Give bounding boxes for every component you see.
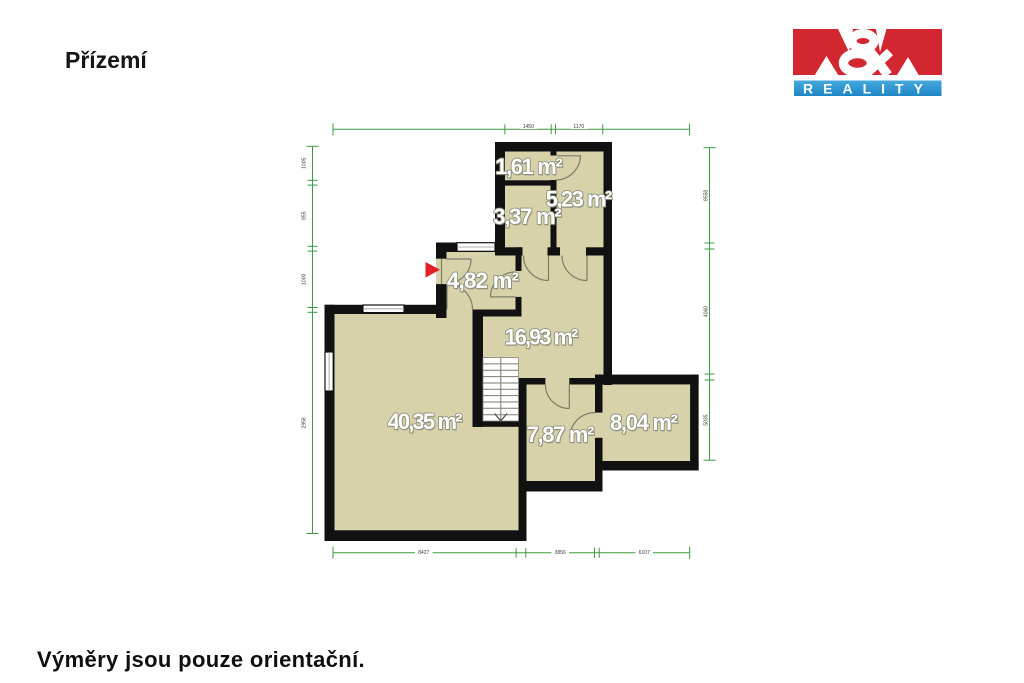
svg-text:7,87 m²: 7,87 m² bbox=[527, 422, 595, 447]
svg-text:1170: 1170 bbox=[573, 124, 584, 130]
svg-text:8558: 8558 bbox=[703, 190, 709, 201]
svg-text:5035: 5035 bbox=[703, 414, 709, 425]
svg-text:1,61 m²: 1,61 m² bbox=[495, 154, 563, 179]
svg-text:4060: 4060 bbox=[703, 306, 709, 317]
svg-text:3856: 3856 bbox=[555, 550, 566, 556]
svg-text:1000: 1000 bbox=[302, 274, 308, 285]
svg-text:4,82 m²: 4,82 m² bbox=[447, 268, 519, 293]
svg-text:16,93 m²: 16,93 m² bbox=[505, 324, 579, 349]
svg-text:40,35 m²: 40,35 m² bbox=[388, 409, 463, 434]
svg-text:REALITY: REALITY bbox=[803, 81, 933, 97]
svg-text:Výměry jsou pouze orientační.: Výměry jsou pouze orientační. bbox=[37, 647, 365, 672]
svg-text:1450: 1450 bbox=[523, 124, 534, 130]
svg-text:2958: 2958 bbox=[302, 417, 308, 428]
svg-text:6107: 6107 bbox=[639, 550, 650, 556]
svg-text:1005: 1005 bbox=[302, 158, 308, 169]
svg-text:855: 855 bbox=[302, 211, 308, 220]
svg-text:8427: 8427 bbox=[418, 550, 429, 556]
svg-text:8,04 m²: 8,04 m² bbox=[610, 410, 678, 435]
svg-text:3,37 m²: 3,37 m² bbox=[493, 204, 562, 229]
svg-text:Přízemí: Přízemí bbox=[65, 47, 148, 73]
